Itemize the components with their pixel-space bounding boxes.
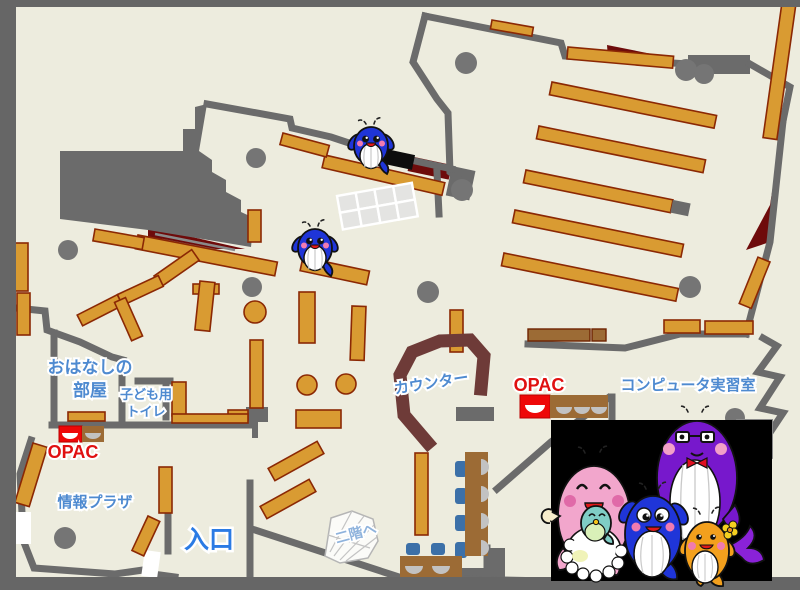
- opac-station-right[interactable]: [520, 395, 608, 418]
- opac-left-label: OPAC: [48, 442, 99, 462]
- info-plaza-label: 情報プラザ: [57, 493, 132, 511]
- floor-map-canvas: おはなしの 部屋 子ども用 トイレ OPAC 情報プラザ 入口 カウンター OP…: [0, 0, 800, 590]
- opac-station-left[interactable]: [59, 426, 104, 442]
- counter-side-desk: [456, 407, 494, 421]
- opac-right-label: OPAC: [514, 375, 565, 395]
- kids-toilet-label-line2: トイレ: [126, 404, 165, 419]
- library-floor-map: おはなしの 部屋 子ども用 トイレ OPAC 情報プラザ 入口 カウンター OP…: [0, 0, 800, 590]
- kids-toilet-label-line1: 子ども用: [120, 387, 172, 402]
- entrance-label: 入口: [184, 526, 234, 554]
- storytelling-room-label-line1: おはなしの: [48, 358, 133, 377]
- computer-room-label: コンピュータ実習室: [620, 376, 755, 394]
- storytelling-room-label-line2: 部屋: [73, 380, 107, 400]
- mascot-family-panel: [542, 406, 772, 586]
